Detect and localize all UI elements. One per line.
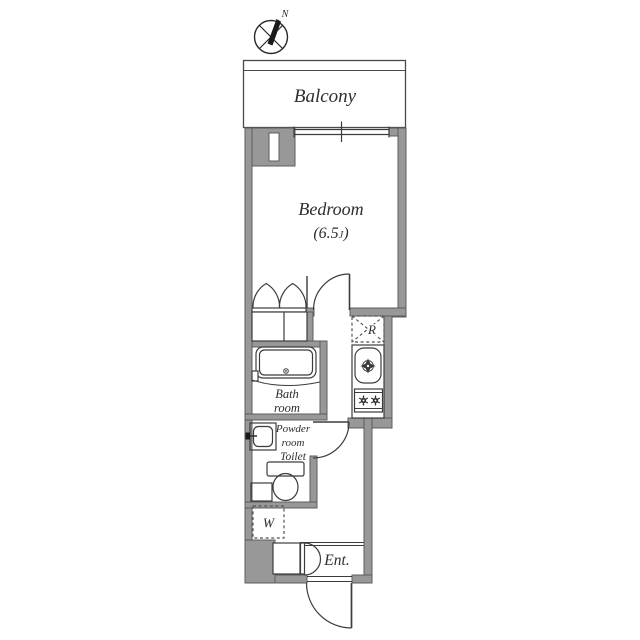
powder-cabinet [251, 483, 272, 501]
bath-side-ledge [252, 371, 258, 381]
bath-room: Bath room [252, 347, 320, 415]
shoe-cabinet-bifold-bottom [305, 559, 321, 575]
wall-bath-right [320, 341, 327, 420]
closet-bifold-doors [253, 276, 307, 308]
wall-bath-top [252, 341, 320, 347]
bedroom-size-label: (6.5J) [313, 225, 348, 242]
powder-label-line2: room [282, 437, 305, 449]
wall-bedroom-bottom-right [350, 308, 406, 316]
balcony-label: Balcony [294, 86, 357, 107]
bath-apron-curve [252, 380, 320, 386]
floor-plan-canvas: N Balcony Bedroom [0, 0, 640, 640]
refrigerator-space: R [352, 316, 384, 342]
powder-label-line3: Toilet [280, 451, 307, 463]
bath-label-line1: Bath [275, 387, 299, 401]
wall-powder-right [310, 456, 317, 502]
wall-bottom-left-block [245, 540, 275, 583]
wall-bottom-right-segment [352, 575, 372, 583]
wall-left [245, 128, 252, 583]
powder-room: Powder room Toilet [246, 422, 350, 501]
closet-box [252, 312, 307, 341]
powder-door [313, 422, 349, 458]
shoe-cabinet-door-frame [301, 543, 305, 574]
bedroom: Bedroom (6.5J) [252, 199, 364, 312]
bathtub-drain-dot [285, 370, 287, 372]
wall-right-lower [364, 418, 372, 583]
balcony: Balcony [244, 61, 406, 128]
toilet-bowl [273, 474, 298, 501]
bedroom-size-close: ) [342, 225, 348, 242]
bedroom-door [314, 274, 350, 310]
closet [252, 312, 307, 341]
bath-label-line2: room [274, 401, 300, 415]
compass-needle-icon [268, 19, 282, 46]
entrance: Ent. [273, 543, 364, 629]
powder-label-line1: Powder [275, 423, 311, 435]
washer-label: W [263, 516, 276, 531]
entrance-door-swing-arc [307, 583, 352, 628]
wall-right-bedroom [398, 128, 406, 314]
bedroom-size-open: (6.5 [313, 225, 338, 242]
wall-pipe-notch [269, 133, 279, 161]
compass-north-label: N [281, 9, 290, 20]
refrigerator-label: R [367, 322, 376, 337]
bedroom-label: Bedroom [298, 199, 363, 219]
floor-plan-page: N Balcony Bedroom [0, 0, 640, 640]
shoe-cabinet [273, 543, 300, 574]
wall-powder-bottom [245, 502, 317, 508]
kitchen-counter [352, 345, 384, 418]
wall-right-kitchen [384, 308, 392, 428]
entrance-label: Ent. [323, 552, 349, 569]
washbasin-faucet-base [246, 433, 251, 440]
kitchen [352, 345, 384, 418]
closet-door-track [252, 308, 306, 312]
washer-space: W [253, 506, 284, 538]
entrance-door [307, 577, 353, 629]
compass: N [255, 9, 290, 54]
